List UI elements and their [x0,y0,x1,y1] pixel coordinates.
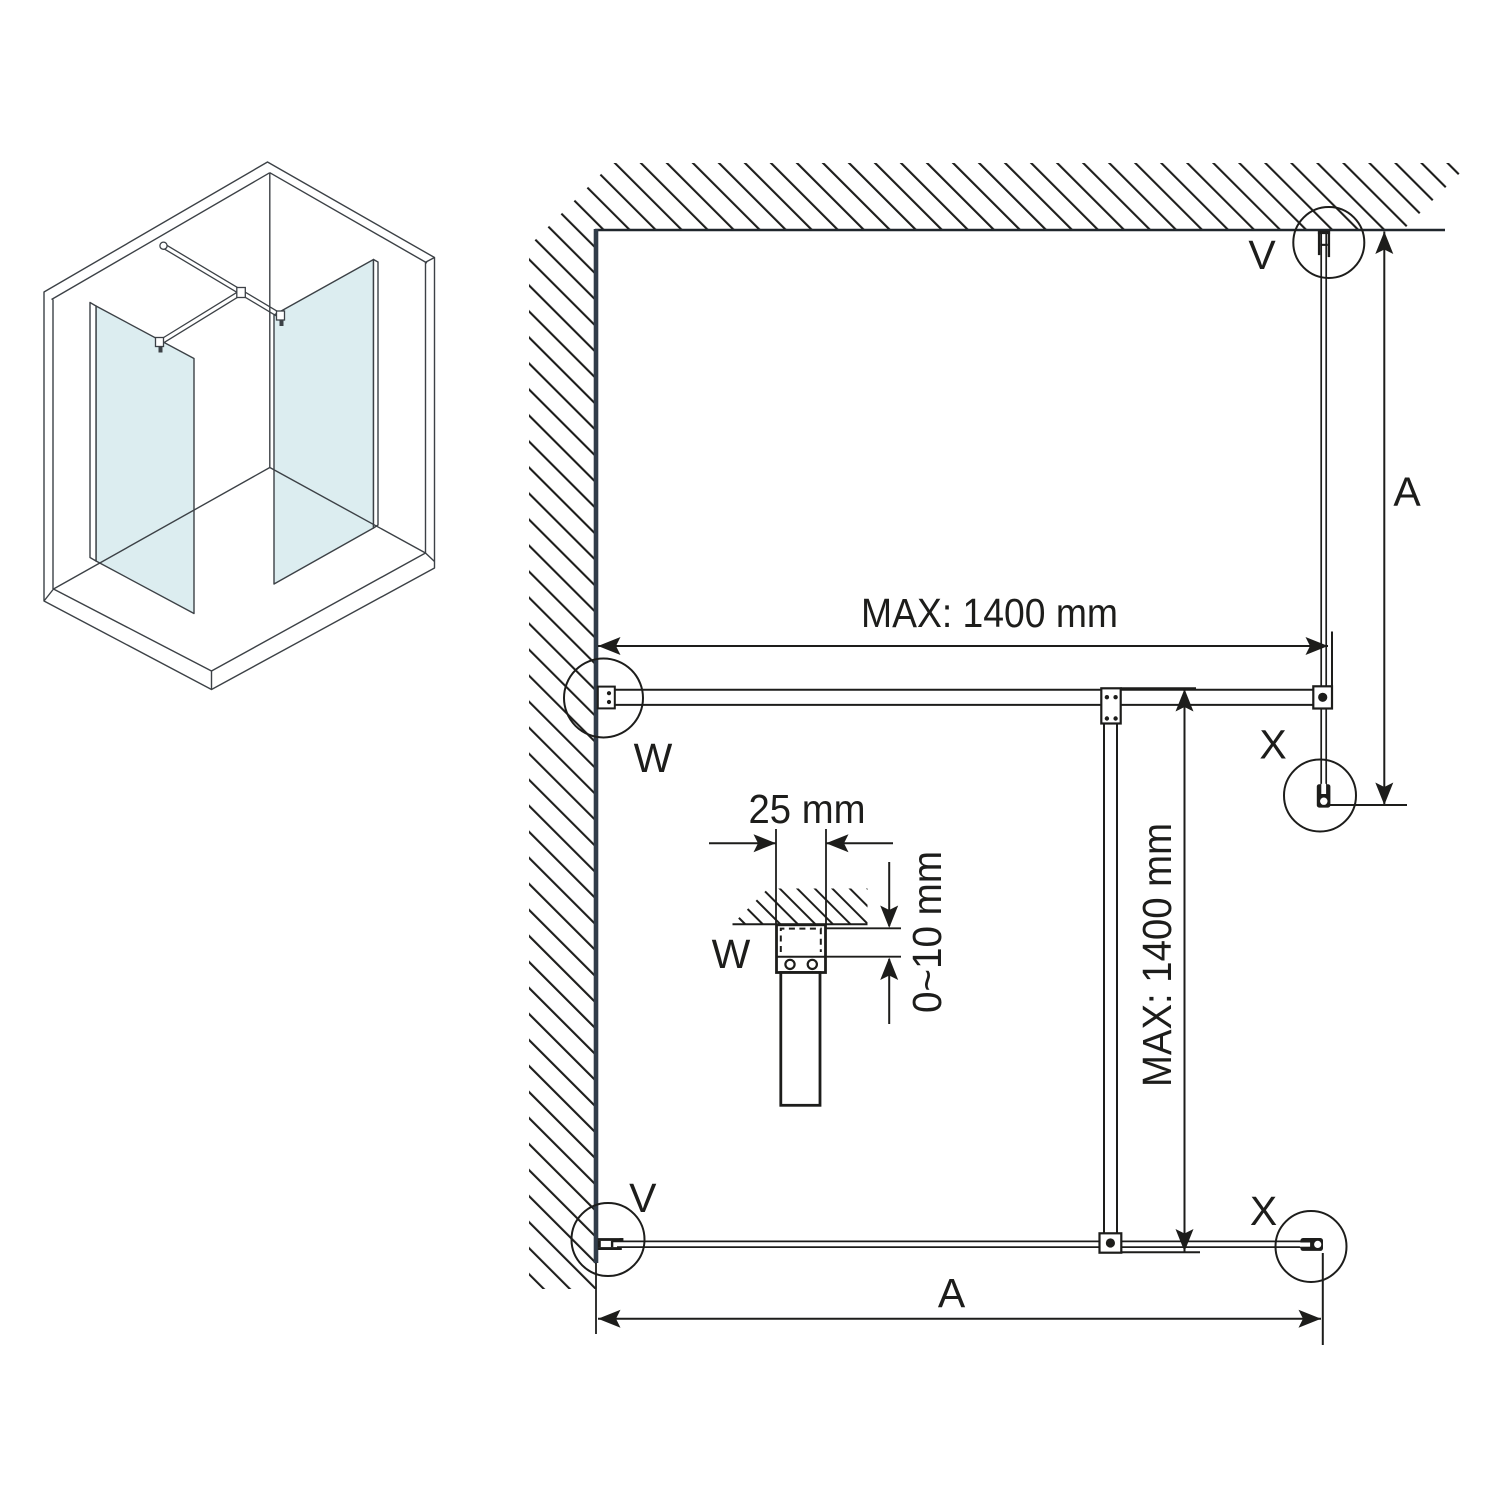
svg-text:X: X [1250,1188,1277,1234]
svg-text:W: W [712,931,751,977]
svg-text:25 mm: 25 mm [749,786,866,832]
svg-text:0~10 mm: 0~10 mm [904,851,950,1013]
svg-text:A: A [1393,469,1421,515]
svg-text:A: A [938,1270,966,1316]
svg-text:V: V [629,1175,657,1221]
svg-text:W: W [634,735,673,781]
svg-text:X: X [1259,722,1286,768]
svg-text:V: V [1248,232,1276,278]
svg-text:MAX: 1400 mm: MAX: 1400 mm [1134,823,1180,1087]
svg-text:MAX: 1400 mm: MAX: 1400 mm [861,590,1118,636]
